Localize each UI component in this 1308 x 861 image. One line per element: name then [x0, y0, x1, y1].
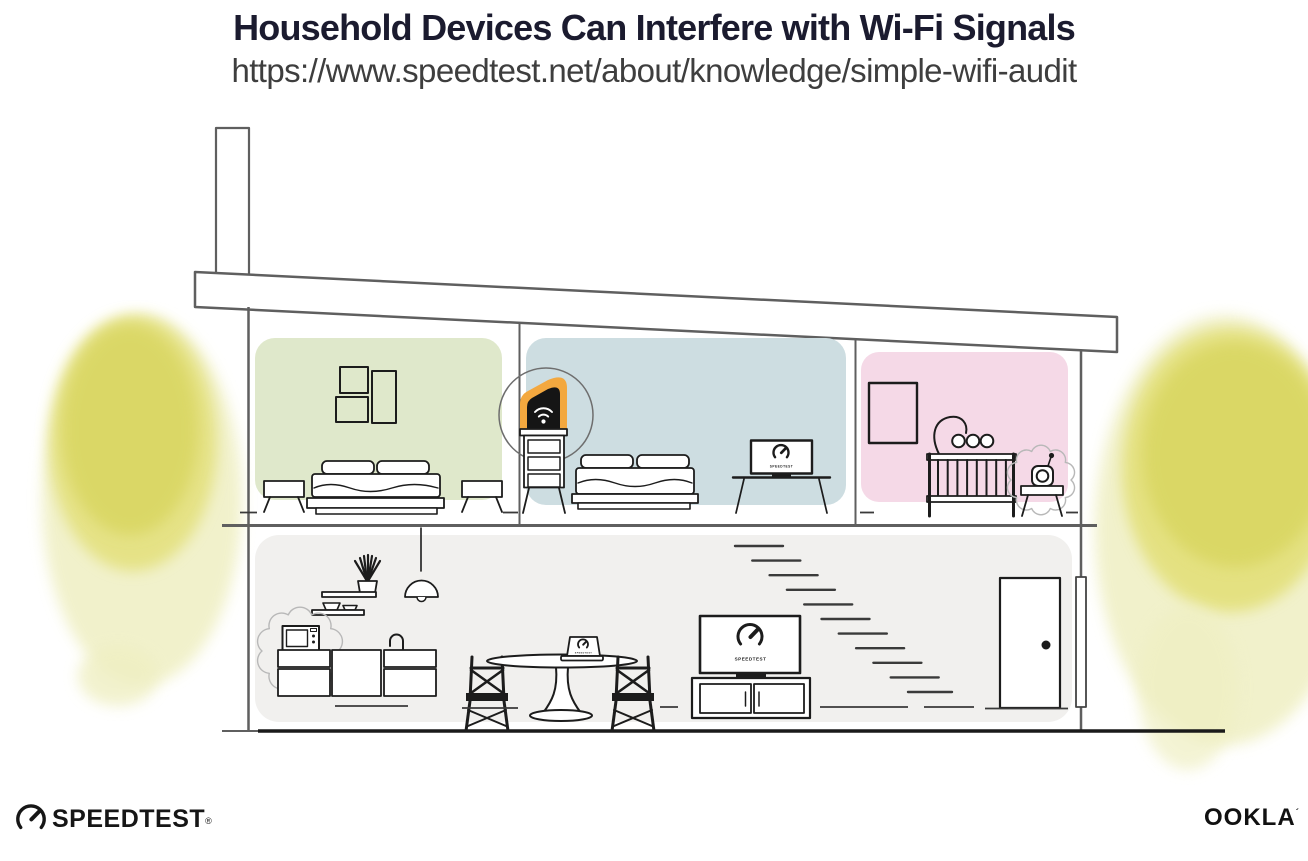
foliage-left — [42, 315, 242, 706]
ookla-logo: OOKLA´ — [1204, 804, 1300, 832]
screen-label: SPEEDTEST — [575, 653, 593, 655]
entry-door — [1000, 577, 1086, 708]
ookla-wordmark: OOKLA — [1204, 804, 1296, 831]
nightstand-icon — [264, 481, 304, 512]
tv-console-icon — [692, 678, 810, 718]
tv-icon: SPEEDTEST — [700, 616, 800, 677]
foliage-right — [1095, 315, 1308, 770]
infographic-wifi-interference: Household Devices Can Interfere with Wi-… — [0, 0, 1308, 861]
door-knob-icon — [1042, 641, 1051, 650]
chimney — [216, 128, 249, 280]
nightstand-icon — [462, 481, 502, 512]
trademark-tick: ´ — [1296, 808, 1300, 819]
living-area: SPEEDTEST — [692, 616, 810, 718]
microwave-icon — [283, 626, 320, 651]
screen-label: SPEEDTEST — [735, 657, 767, 662]
speedtest-logo: SPEEDTEST® — [14, 802, 212, 836]
speedtest-gauge-icon — [14, 802, 48, 836]
door-icon — [1000, 578, 1060, 708]
registered-mark: ® — [205, 816, 212, 826]
speedtest-wordmark: SPEEDTEST — [52, 805, 205, 834]
door-sidelight — [1076, 577, 1086, 707]
screen-label: SPEEDTEST — [770, 465, 793, 469]
house-cross-section-illustration: SPEEDTEST — [0, 0, 1308, 861]
